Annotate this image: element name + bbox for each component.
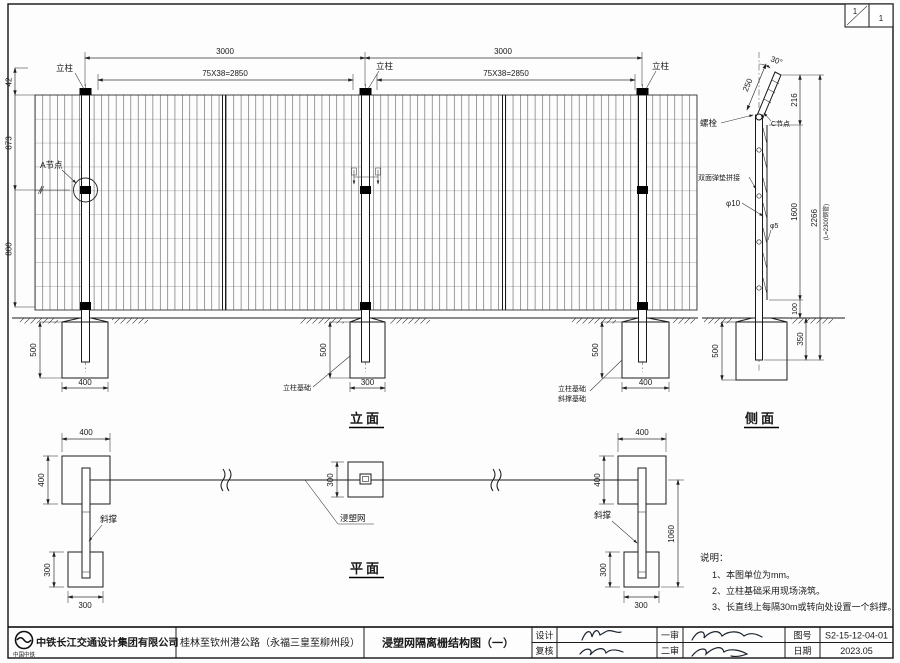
date-value: 2023.05 <box>840 646 873 656</box>
dim-300-f2: 300 <box>361 378 375 387</box>
elevation-view: 3000 3000 75X38=2850 75X38=2850 立柱 立柱 立柱… <box>5 47 699 428</box>
node-c-label: C节点 <box>771 120 790 128</box>
dim-arm: 250 <box>741 77 755 93</box>
crcc-logo: 中国中铁 <box>13 632 36 659</box>
dim-400-plan-r-side: 400 <box>593 473 602 487</box>
dim-span-2: 3000 <box>494 47 512 56</box>
dim-100: 100 <box>792 303 799 315</box>
dim-300-plan-r-side: 300 <box>599 563 608 577</box>
drawing-canvas: 1 1 <box>0 0 900 663</box>
signature-design <box>582 631 621 640</box>
review2-label: 二审 <box>661 645 679 656</box>
signature-review1 <box>692 632 762 640</box>
dim-2266-note: (L=2300钢管) <box>822 204 830 240</box>
dim-500-side: 500 <box>711 344 720 358</box>
drawing-number: S2-15-12-04-01 <box>825 631 888 641</box>
drawing-no-label: 图号 <box>793 631 811 641</box>
note-item-2: 2、立柱基础采用现场浇筑。 <box>712 585 825 596</box>
notes-block: 说明： 1、本图单位为mm。 2、立柱基础采用现场浇筑。 3、长直线上每隔30m… <box>700 552 897 612</box>
bolt-circle <box>756 114 762 120</box>
drawing-title: 浸塑网隔离栅结构图（一） <box>382 636 514 650</box>
post-foundation-label-mid: 立柱基础 <box>283 383 311 392</box>
phi5-label: φ5 <box>770 223 779 230</box>
dim-300-plan-l-side: 300 <box>43 563 52 577</box>
dim-top: 42 <box>5 77 14 86</box>
dim-500-f3: 500 <box>591 343 600 357</box>
foundation-side: 500 <box>711 318 787 380</box>
design-label: 设计 <box>535 630 553 641</box>
brace-label-left: 斜撑 <box>100 514 118 524</box>
dim-300-plan-l-bot: 300 <box>78 601 92 610</box>
title-block: 中国中铁 中铁长江交通设计集团有限公司 桂林至钦州港公路（永福三皇至柳州段） 浸… <box>8 627 893 659</box>
check-label: 复核 <box>535 645 553 656</box>
project-name: 桂林至钦州港公路（永福三皇至柳州段） <box>180 636 360 649</box>
drawing-sheet: 1 1 <box>0 0 900 663</box>
side-view: 30° 250 螺栓 C节点 双面弹垫拼接 φ10 φ5 216 1600 10… <box>698 52 845 428</box>
company-name: 中铁长江交通设计集团有限公司 <box>36 636 179 649</box>
sheet-total: 1 <box>879 14 884 23</box>
plan-view: 400 400 300 300 斜撑 300 <box>37 428 684 610</box>
side-title: 侧面 <box>745 411 777 426</box>
signature-review2 <box>692 648 747 657</box>
post-label-2: 立柱 <box>376 61 394 71</box>
dim-upper: 873 <box>5 136 14 150</box>
splice-label: 双面弹垫拼接 <box>698 173 740 182</box>
dim-mesh-2: 75X38=2850 <box>483 69 529 78</box>
phi10-label: φ10 <box>726 199 741 208</box>
post-foundation-label-right: 立柱基础 <box>558 384 586 393</box>
notes-title: 说明： <box>700 552 729 564</box>
brace-foundation-label-right: 斜撑基础 <box>558 394 586 403</box>
plan-middle-unit: 300 浸塑网 <box>305 462 383 524</box>
post-label-1: 立柱 <box>56 63 74 73</box>
dim-1600: 1600 <box>790 203 799 221</box>
dim-300-plan-mid: 300 <box>326 473 335 487</box>
dim-span-1: 3000 <box>216 47 234 56</box>
node-a-label: A节点 <box>40 160 63 170</box>
plan-right-unit: 400 400 1060 300 300 斜撑 <box>593 428 684 610</box>
sheet-number-box: 1 1 <box>845 4 893 27</box>
dim-400-f1: 400 <box>78 378 92 387</box>
brace-label-right: 斜撑 <box>594 510 612 520</box>
plan-title: 平面 <box>350 561 382 576</box>
dim-angle: 30° <box>769 54 783 67</box>
dim-mesh-1: 75X38=2850 <box>202 69 248 78</box>
post-side <box>756 115 763 360</box>
dim-1060-plan: 1060 <box>667 525 676 543</box>
dim-400-f3: 400 <box>639 378 653 387</box>
post-3 <box>637 84 649 372</box>
dim-300-plan-r-bot: 300 <box>634 601 648 610</box>
dim-350: 350 <box>796 332 805 346</box>
dim-lower: 800 <box>5 242 14 256</box>
dim-2266: 2266 <box>810 209 819 227</box>
dim-500-f1: 500 <box>29 343 38 357</box>
bolt-label: 螺栓 <box>700 118 718 128</box>
dim-400-plan-l-side: 400 <box>37 473 46 487</box>
dim-216: 216 <box>790 93 799 107</box>
plan-left-unit: 400 400 300 300 斜撑 <box>37 428 118 610</box>
date-label: 日期 <box>793 646 811 656</box>
sheet-no: 1 <box>853 7 858 16</box>
post-label-3: 立柱 <box>652 61 670 71</box>
review1-label: 一审 <box>661 630 679 641</box>
mesh-label: 浸塑网 <box>340 513 366 523</box>
dim-400-plan-r-top: 400 <box>635 428 649 437</box>
note-item-1: 1、本图单位为mm。 <box>712 569 795 580</box>
dim-500-f2: 500 <box>319 343 328 357</box>
logo-text: 中国中铁 <box>13 651 36 659</box>
note-item-3: 3、长直线上每隔30m或转向处设置一个斜撑。 <box>712 601 897 612</box>
signature-check <box>580 649 623 655</box>
elevation-title: 立面 <box>350 411 382 426</box>
dim-400-plan-l-top: 400 <box>79 428 93 437</box>
